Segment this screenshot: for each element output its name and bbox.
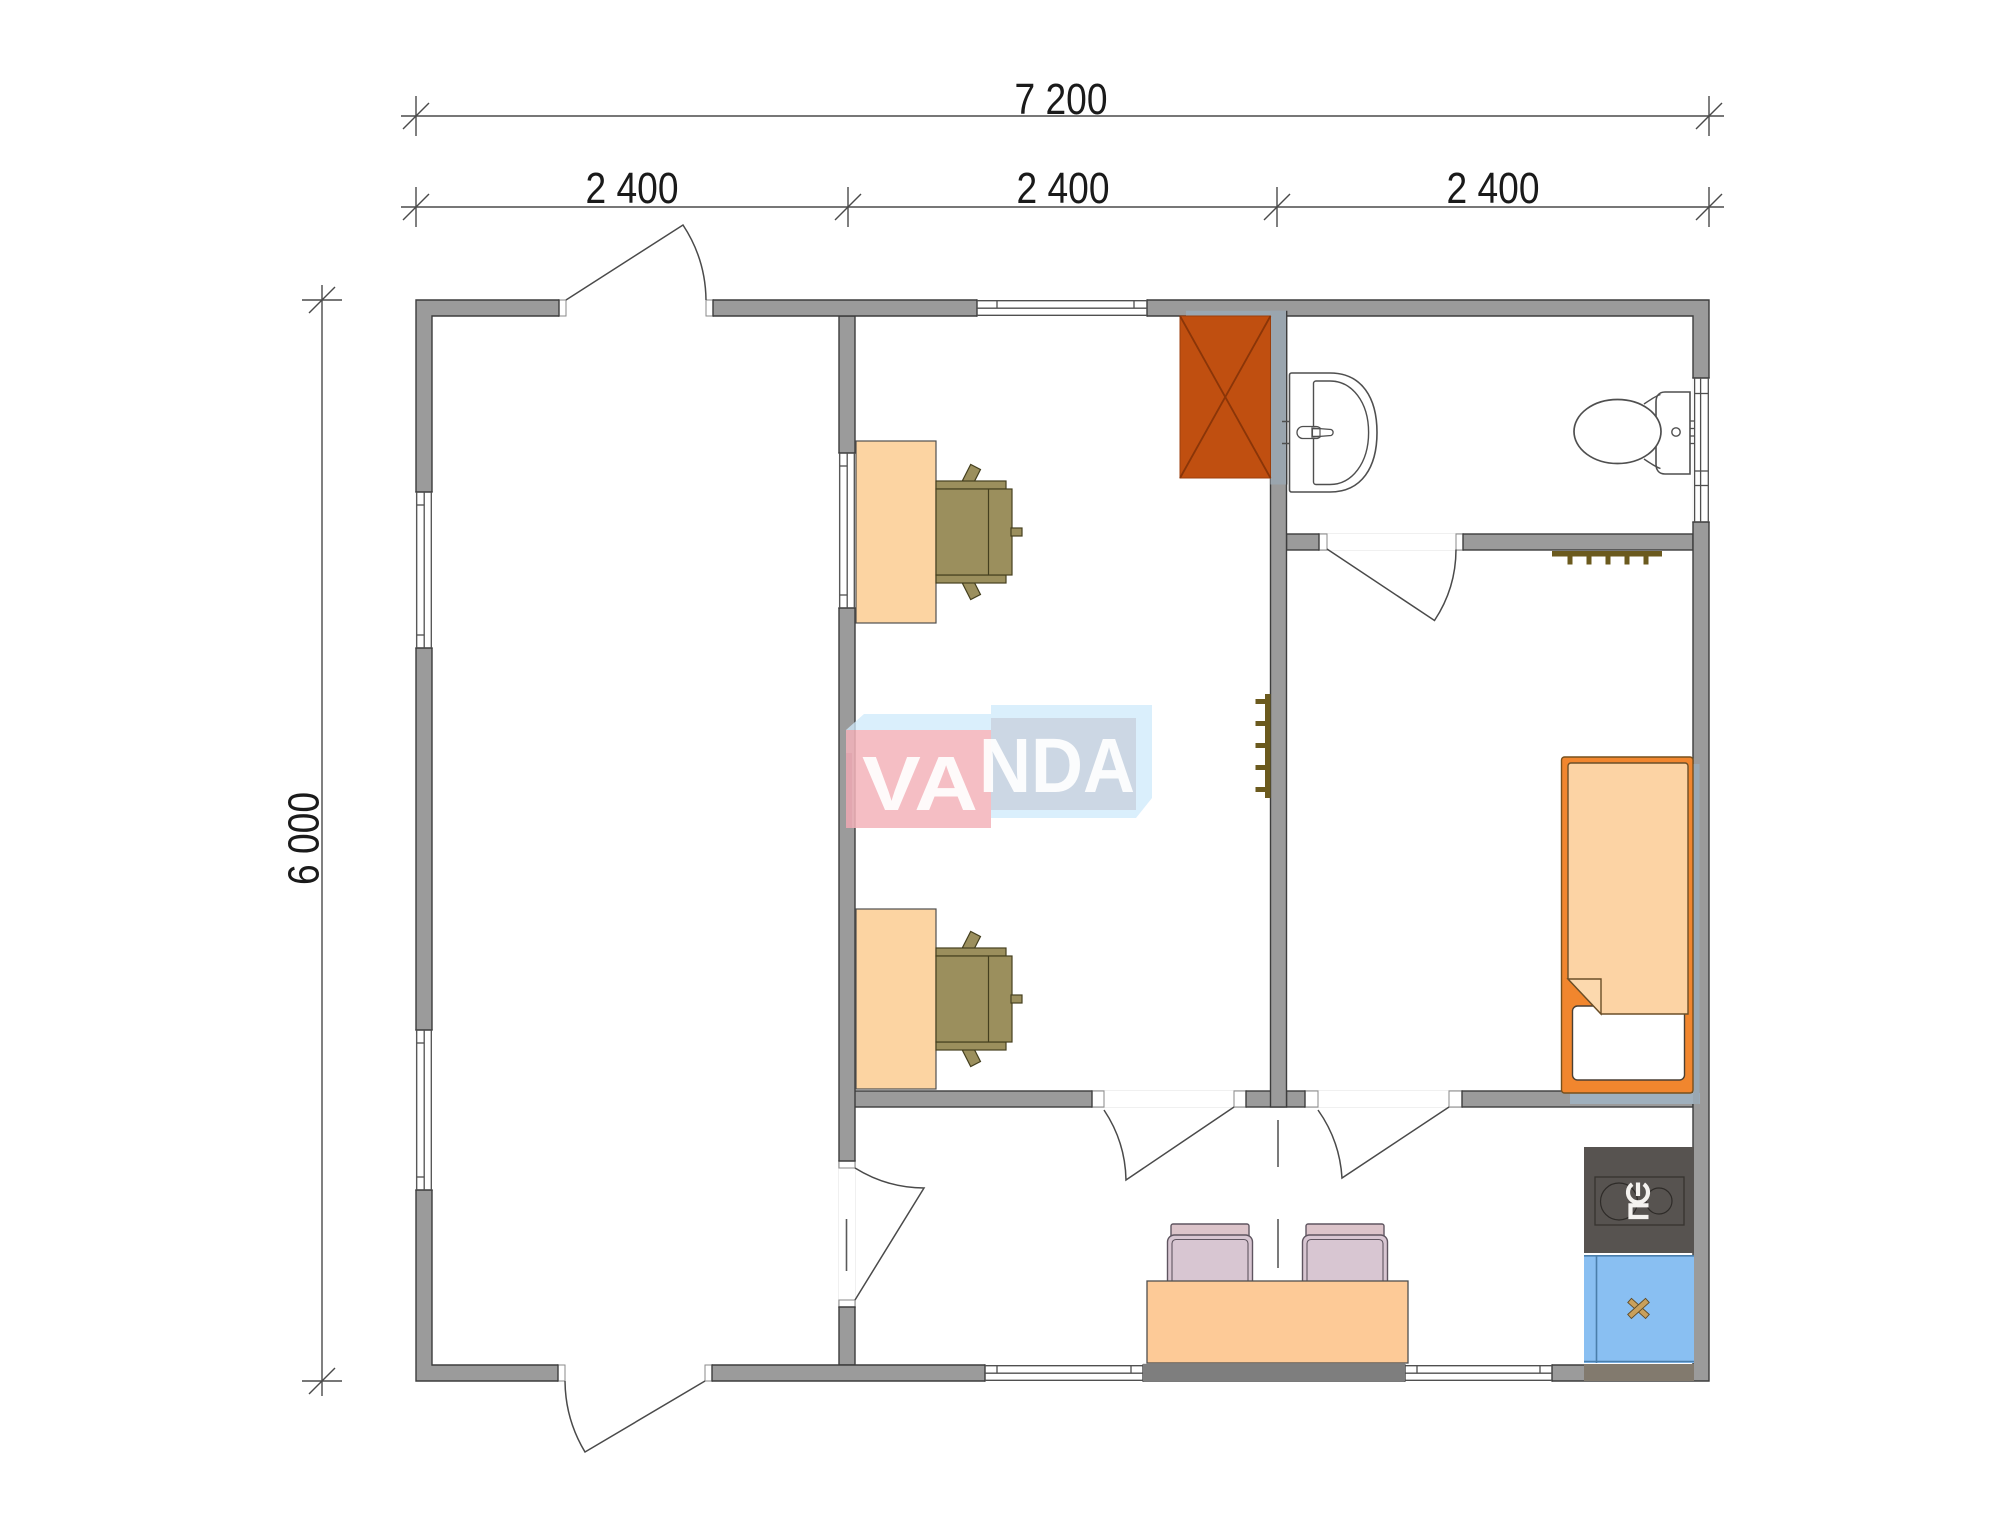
svg-text:2 400: 2 400 [586, 164, 679, 213]
svg-text:2 400: 2 400 [1447, 164, 1540, 213]
svg-text:VA: VA [862, 741, 978, 827]
svg-text:7 200: 7 200 [1015, 75, 1108, 124]
svg-text:NDA: NDA [979, 723, 1135, 809]
svg-text:2 400: 2 400 [1017, 164, 1110, 213]
svg-text:6 000: 6 000 [280, 792, 329, 885]
